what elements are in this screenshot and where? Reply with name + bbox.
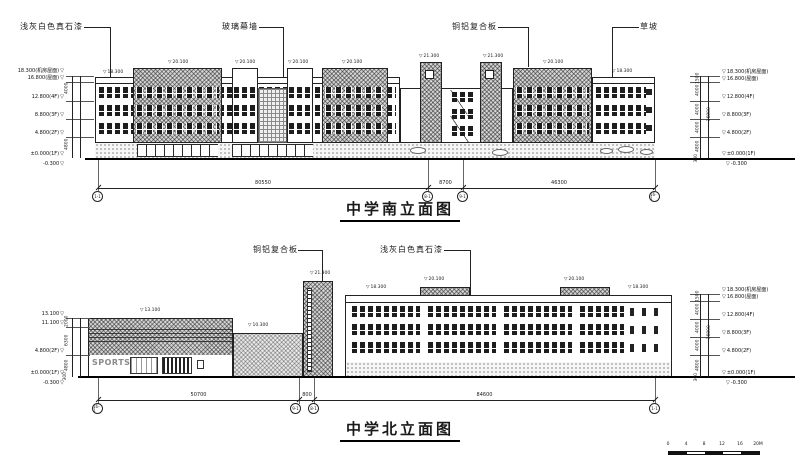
- dimension-value: 84600: [314, 393, 655, 398]
- window-row: [428, 306, 496, 317]
- scale-bar-segment: [705, 452, 723, 454]
- spot-elevation: 21.300: [483, 55, 503, 60]
- chain-dim: 300: [695, 373, 700, 382]
- level-marker: 12.800(4F): [722, 313, 754, 319]
- level-marker: 8.800(3F): [722, 331, 751, 337]
- grid-bubble: 8-1: [308, 403, 319, 414]
- grid-bubble: 16-1: [92, 403, 103, 414]
- scale-bar-segment: [687, 452, 705, 454]
- level-marker: ±0.000(1F): [16, 371, 64, 377]
- tower-window-strip: [307, 288, 312, 372]
- building-sign: SPORTS: [92, 359, 130, 367]
- callout-leader-line: [259, 27, 283, 28]
- window-row: [452, 126, 476, 136]
- raised-parapet: [560, 287, 610, 296]
- chain-dim: 4800: [696, 360, 701, 371]
- dimension-chain-line: [80, 76, 81, 158]
- dimension-chain-line: [72, 76, 73, 158]
- louver-panel: [162, 357, 192, 374]
- dimension-value: 46300: [463, 181, 655, 186]
- spot-elevation: 20.100: [288, 61, 308, 66]
- window-row: [504, 324, 572, 335]
- glass-curtain-wall: [258, 88, 287, 143]
- level-marker: 18.300(机房屋面): [722, 70, 768, 76]
- callout-leader-line: [444, 250, 470, 251]
- dimension-value: 80550: [98, 181, 428, 186]
- low-block: [233, 333, 303, 377]
- south-elevation-title: 中学南立面图: [340, 198, 460, 222]
- chain-dim: 4000: [696, 85, 701, 96]
- window-row: [289, 105, 311, 116]
- window-row: [630, 326, 666, 334]
- scale-label: 16: [732, 443, 748, 448]
- drawing-sheet: 浅灰白色真石漆 玻璃幕墙 铜铝复合板 草坡: [0, 0, 800, 475]
- colonnade: [232, 144, 313, 157]
- spot-elevation: 20.100: [424, 278, 444, 283]
- ground-hatch-band: [346, 362, 671, 376]
- callout-leader-line: [612, 27, 639, 28]
- window-row: [516, 87, 589, 98]
- window-row: [352, 306, 420, 317]
- window-row: [352, 324, 420, 335]
- dimension-chain-line: [80, 318, 81, 377]
- grid-bubble: 1-1: [649, 403, 660, 414]
- material-callout: 铜铝复合板: [253, 244, 298, 255]
- glass-door: [130, 357, 158, 374]
- level-marker: 8.800(3F): [16, 113, 64, 119]
- scale-bar-segment: [741, 452, 759, 454]
- window-row: [516, 105, 589, 116]
- dimension-line: [98, 188, 655, 189]
- level-marker: 18.300(机房屋面): [722, 288, 768, 294]
- window-row: [289, 123, 311, 134]
- chain-dim: 300: [64, 372, 69, 381]
- material-callout: 草坡: [640, 21, 658, 32]
- chain-dim-total: 16800: [708, 325, 713, 339]
- chain-dim: 4000: [696, 304, 701, 315]
- scale-label: 0: [660, 443, 676, 448]
- level-marker: 4.800(2F): [16, 131, 64, 137]
- window-row: [136, 87, 219, 98]
- chain-dim: 4800: [65, 139, 70, 150]
- window-row: [136, 105, 219, 116]
- scale-label: 12: [714, 443, 730, 448]
- window-row: [516, 123, 589, 134]
- spot-elevation: 18.300: [103, 71, 123, 76]
- level-marker: -0.300: [16, 162, 64, 168]
- spot-elevation: 21.300: [419, 55, 439, 60]
- roof-line: [345, 302, 672, 303]
- window-row: [325, 87, 385, 98]
- shrub: [618, 146, 634, 153]
- grid-bubble: 16-1: [649, 191, 660, 202]
- chain-dim: 4000: [696, 322, 701, 333]
- vent: [646, 107, 652, 113]
- level-marker: -0.300: [726, 162, 747, 168]
- level-line: [690, 119, 720, 120]
- window-row: [136, 123, 219, 134]
- level-marker: 16.800(屋面): [722, 295, 758, 301]
- spot-elevation: 13.100: [140, 309, 160, 314]
- chain-dim: 4800: [65, 360, 70, 371]
- scale-label: 20M: [750, 443, 766, 448]
- dimension-value: 8700: [428, 181, 463, 186]
- small-window: [197, 360, 204, 369]
- window-row: [428, 324, 496, 335]
- level-marker: 4.800(2F): [722, 131, 751, 137]
- spot-elevation: 18.300: [628, 286, 648, 291]
- callout-leader-line: [528, 27, 529, 67]
- callout-leader-line: [298, 250, 322, 251]
- spot-elevation: 20.100: [235, 61, 255, 66]
- chain-dim: 4000: [696, 340, 701, 351]
- spot-elevation: 10.300: [248, 324, 268, 329]
- shrub: [410, 147, 426, 154]
- level-line: [66, 327, 90, 328]
- chain-dim: 4000: [696, 104, 701, 115]
- colonnade: [137, 144, 218, 157]
- material-callout: 浅灰白色真石漆: [20, 21, 83, 32]
- level-marker: -0.300: [726, 381, 747, 387]
- window-row: [452, 92, 476, 102]
- shrub: [640, 149, 653, 155]
- dimension-chain-line: [72, 318, 73, 377]
- level-marker: 4.800(2F): [16, 349, 64, 355]
- tower-window: [425, 70, 434, 79]
- facade-stripes: [89, 328, 232, 342]
- window-row: [325, 105, 385, 116]
- dimension-value: 50700: [98, 393, 299, 398]
- window-row: [234, 123, 256, 134]
- chain-dim: 300: [695, 154, 700, 163]
- spot-elevation: 18.300: [612, 70, 632, 75]
- vent: [646, 89, 652, 95]
- window-row: [630, 344, 666, 352]
- callout-leader-line: [498, 27, 528, 28]
- window-row: [428, 342, 496, 353]
- chain-dim: 6300: [65, 335, 70, 346]
- window-row: [630, 308, 666, 316]
- level-marker: 11.100: [16, 321, 64, 327]
- level-line: [690, 137, 720, 138]
- scale-bar-segment: [723, 452, 741, 454]
- level-marker: 13.100: [16, 312, 64, 318]
- level-line: [66, 355, 90, 356]
- level-marker: 16.800(屋面): [16, 76, 64, 82]
- chain-dim: 2000: [65, 316, 70, 327]
- raised-parapet: [420, 287, 470, 296]
- material-callout: 铜铝复合板: [452, 21, 497, 32]
- level-marker: ±0.000(1F): [16, 152, 64, 158]
- material-callout: 玻璃幕墙: [222, 21, 258, 32]
- window-row: [580, 306, 624, 317]
- shrub: [492, 149, 508, 156]
- window-row: [504, 342, 572, 353]
- grid-bubble: 9-1: [290, 403, 301, 414]
- level-marker: ±0.000(1F): [722, 152, 755, 158]
- window-row: [289, 87, 311, 98]
- chain-dim: 4000: [696, 122, 701, 133]
- window-row: [504, 306, 572, 317]
- level-marker: 18.300(机房屋面): [16, 69, 64, 75]
- level-line: [690, 355, 720, 356]
- ground-line: [78, 376, 795, 378]
- window-row: [596, 87, 646, 98]
- chain-dim: 4800: [696, 141, 701, 152]
- spot-elevation: 20.100: [168, 61, 188, 66]
- chain-dim-total: 16800: [708, 107, 713, 121]
- spot-elevation: 20.100: [543, 61, 563, 66]
- spot-elevation: 18.300: [366, 286, 386, 291]
- grid-bubble: 1-1: [92, 191, 103, 202]
- level-marker: 12.800(4F): [16, 95, 64, 101]
- window-row: [596, 123, 646, 134]
- window-row: [580, 342, 624, 353]
- chain-dim: 4000: [65, 83, 70, 94]
- level-marker: 8.800(3F): [722, 113, 751, 119]
- window-row: [596, 105, 646, 116]
- window-row: [580, 324, 624, 335]
- scale-bar-segment: [669, 452, 687, 454]
- ground-line: [85, 158, 795, 160]
- level-line: [690, 101, 720, 102]
- vent: [646, 125, 652, 131]
- level-line: [690, 337, 720, 338]
- level-marker: -0.300: [16, 381, 64, 387]
- spot-elevation: 20.100: [564, 278, 584, 283]
- callout-leader-line: [84, 27, 110, 28]
- dimension-line: [98, 400, 655, 401]
- window-row: [234, 105, 256, 116]
- chain-dim: 1500: [696, 291, 701, 302]
- level-marker: 4.800(2F): [722, 349, 751, 355]
- window-row: [234, 87, 256, 98]
- graphic-scale-bar: [668, 451, 760, 455]
- chain-dim: 1500: [696, 73, 701, 84]
- level-marker: ±0.000(1F): [722, 371, 755, 377]
- spot-elevation: 21.300: [310, 272, 330, 277]
- scale-label: 8: [696, 443, 712, 448]
- window-row: [352, 342, 420, 353]
- level-marker: 16.800(屋面): [722, 77, 758, 83]
- shrub: [600, 148, 613, 154]
- tower-window: [485, 70, 494, 79]
- window-row: [325, 123, 385, 134]
- roof-line: [592, 83, 655, 84]
- north-elevation-title: 中学北立面图: [340, 418, 460, 442]
- window-row: [452, 109, 476, 119]
- level-marker: 12.800(4F): [722, 95, 754, 101]
- level-line: [690, 319, 720, 320]
- callout-leader-line: [470, 250, 471, 295]
- material-callout: 浅灰白色真石漆: [380, 244, 443, 255]
- scale-label: 4: [678, 443, 694, 448]
- spot-elevation: 20.100: [342, 61, 362, 66]
